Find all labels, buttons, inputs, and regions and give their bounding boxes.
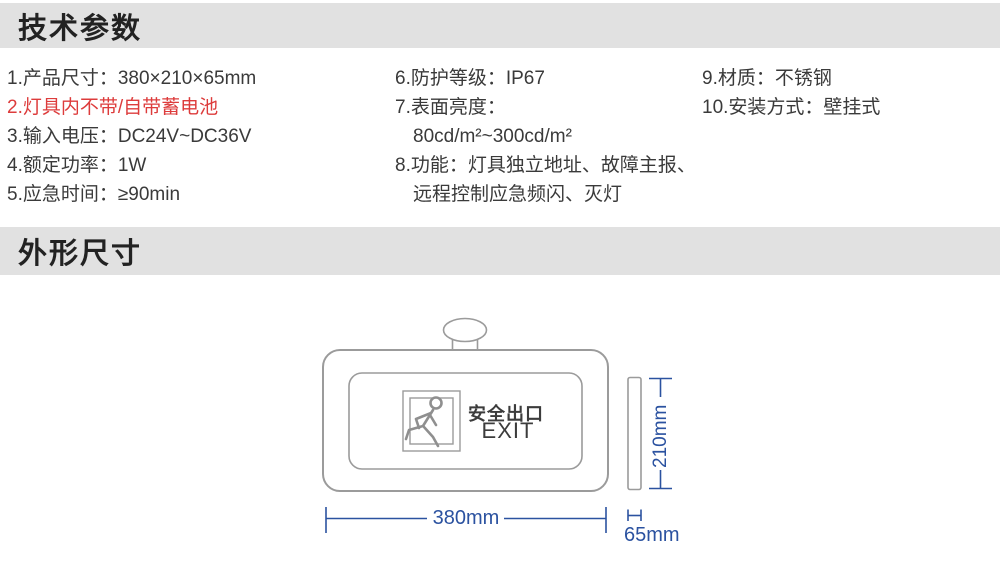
param-column-2: 6.防护等级：IP67 7.表面亮度： 80cd/m²~300cd/m² 8.功… [395, 64, 696, 209]
dim-label-width: 380mm [421, 507, 511, 530]
outline-dims-title: 外形尺寸 [0, 230, 142, 272]
lamp-body-side [628, 378, 641, 490]
param-mounting: 10.安装方式：壁挂式 [702, 93, 880, 122]
mounting-knob [444, 319, 487, 342]
param-material: 9.材质：不锈钢 [702, 64, 880, 93]
param-surface-brightness-value: 80cd/m²~300cd/m² [395, 122, 696, 151]
param-rated-power: 4.额定功率：1W [7, 151, 256, 180]
param-product-size: 1.产品尺寸：380×210×65mm [7, 64, 256, 93]
param-ip-rating: 6.防护等级：IP67 [395, 64, 696, 93]
dim-line-depth-65 [628, 510, 641, 522]
param-functions: 8.功能：灯具独立地址、故障主报、 [395, 151, 696, 180]
dim-label-depth: 65mm [624, 524, 680, 547]
outline-dims-header: 外形尺寸 [0, 227, 1000, 275]
param-emergency-time: 5.应急时间：≥90min [7, 180, 256, 209]
param-functions-cont: 远程控制应急频闪、灭灯 [395, 180, 696, 209]
sign-text-exit: EXIT [468, 418, 548, 444]
tech-params-header: 技术参数 [0, 3, 1000, 48]
param-column-1: 1.产品尺寸：380×210×65mm 2.灯具内不带/自带蓄电池 3.输入电压… [7, 64, 256, 209]
param-battery-note: 2.灯具内不带/自带蓄电池 [7, 93, 256, 122]
param-surface-brightness: 7.表面亮度： [395, 93, 696, 122]
tech-params-title: 技术参数 [0, 5, 142, 47]
dim-label-height: 210mm [644, 399, 678, 473]
param-input-voltage: 3.输入电压：DC24V~DC36V [7, 122, 256, 151]
param-column-3: 9.材质：不锈钢 10.安装方式：壁挂式 [702, 64, 880, 122]
datasheet-page: 技术参数 1.产品尺寸：380×210×65mm 2.灯具内不带/自带蓄电池 3… [0, 0, 1000, 562]
